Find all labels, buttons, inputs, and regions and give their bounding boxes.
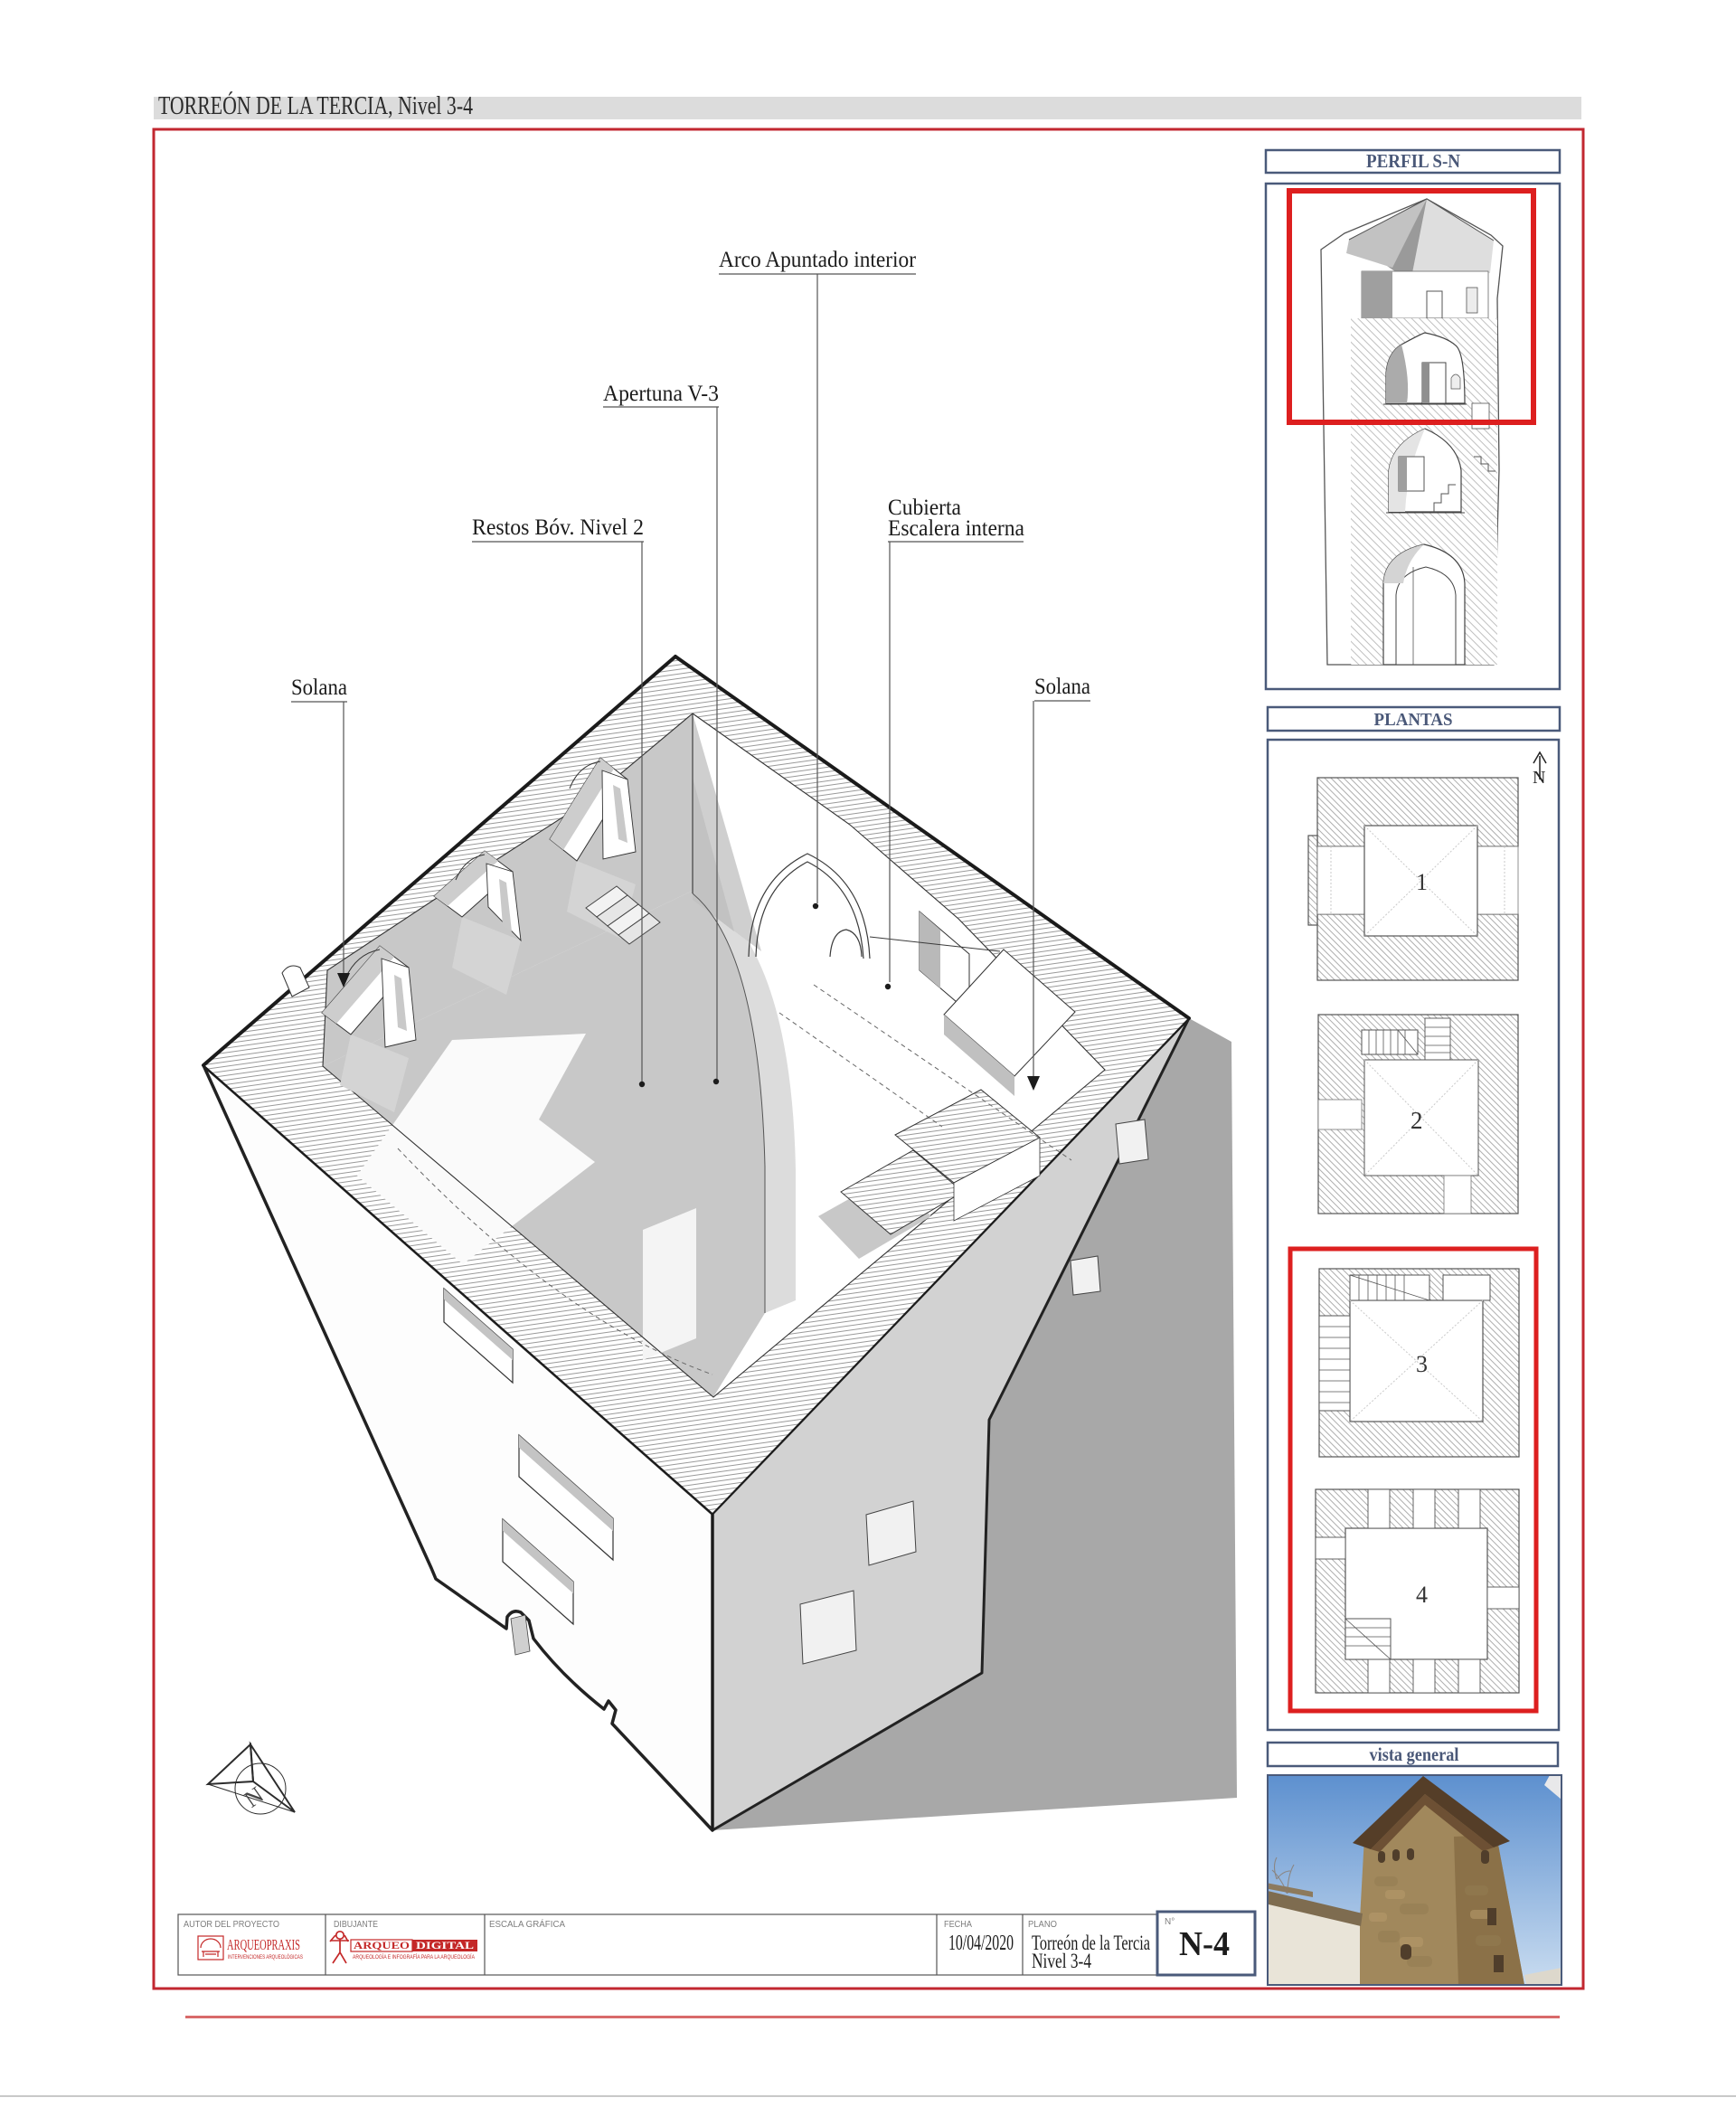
svg-text:PERFIL S-N: PERFIL S-N bbox=[1366, 150, 1460, 172]
svg-text:INTERVENCIONES ARQUEOLÓGICAS: INTERVENCIONES ARQUEOLÓGICAS bbox=[228, 1954, 303, 1961]
svg-text:3: 3 bbox=[1416, 1351, 1428, 1377]
svg-text:Restos Bóv. Nivel 2: Restos Bóv. Nivel 2 bbox=[472, 515, 644, 540]
svg-text:1: 1 bbox=[1416, 869, 1428, 895]
svg-text:N: N bbox=[1533, 768, 1545, 788]
svg-text:ARQUEOLOGÍA E INFOGRAFÍA PARA: ARQUEOLOGÍA E INFOGRAFÍA PARA LA ARQUEOL… bbox=[353, 1954, 475, 1961]
svg-text:DIBUJANTE: DIBUJANTE bbox=[334, 1920, 378, 1930]
svg-text:AUTOR DEL PROYECTO: AUTOR DEL PROYECTO bbox=[184, 1920, 279, 1930]
svg-text:PLANO: PLANO bbox=[1028, 1920, 1057, 1930]
svg-text:Solana: Solana bbox=[291, 676, 347, 700]
svg-text:N-4: N-4 bbox=[1179, 1925, 1230, 1963]
svg-text:Solana: Solana bbox=[1034, 675, 1090, 699]
svg-text:10/04/2020: 10/04/2020 bbox=[948, 1932, 1014, 1955]
svg-text:Nivel 3-4: Nivel 3-4 bbox=[1032, 1950, 1091, 1972]
svg-text:4: 4 bbox=[1416, 1582, 1428, 1608]
svg-text:FECHA: FECHA bbox=[944, 1920, 972, 1930]
svg-text:ESCALA GRÁFICA: ESCALA GRÁFICA bbox=[489, 1918, 565, 1930]
svg-text:PLANTAS: PLANTAS bbox=[1374, 710, 1453, 730]
svg-text:Arco Apuntado interior: Arco Apuntado interior bbox=[719, 248, 917, 272]
svg-text:TORREÓN DE LA TERCIA, Nivel 3-: TORREÓN DE LA TERCIA, Nivel 3-4 bbox=[158, 90, 473, 120]
svg-text:2: 2 bbox=[1410, 1107, 1423, 1134]
svg-text:Escalera interna: Escalera interna bbox=[888, 516, 1024, 541]
svg-text:ARQUEOPRAXIS: ARQUEOPRAXIS bbox=[227, 1936, 300, 1953]
svg-text:DIGITAL: DIGITAL bbox=[416, 1939, 474, 1951]
svg-text:ARQUEO: ARQUEO bbox=[354, 1939, 410, 1951]
svg-text:Apertuna V-3: Apertuna V-3 bbox=[603, 382, 719, 406]
svg-text:N°: N° bbox=[1165, 1917, 1175, 1927]
svg-text:vista general: vista general bbox=[1370, 1743, 1459, 1765]
